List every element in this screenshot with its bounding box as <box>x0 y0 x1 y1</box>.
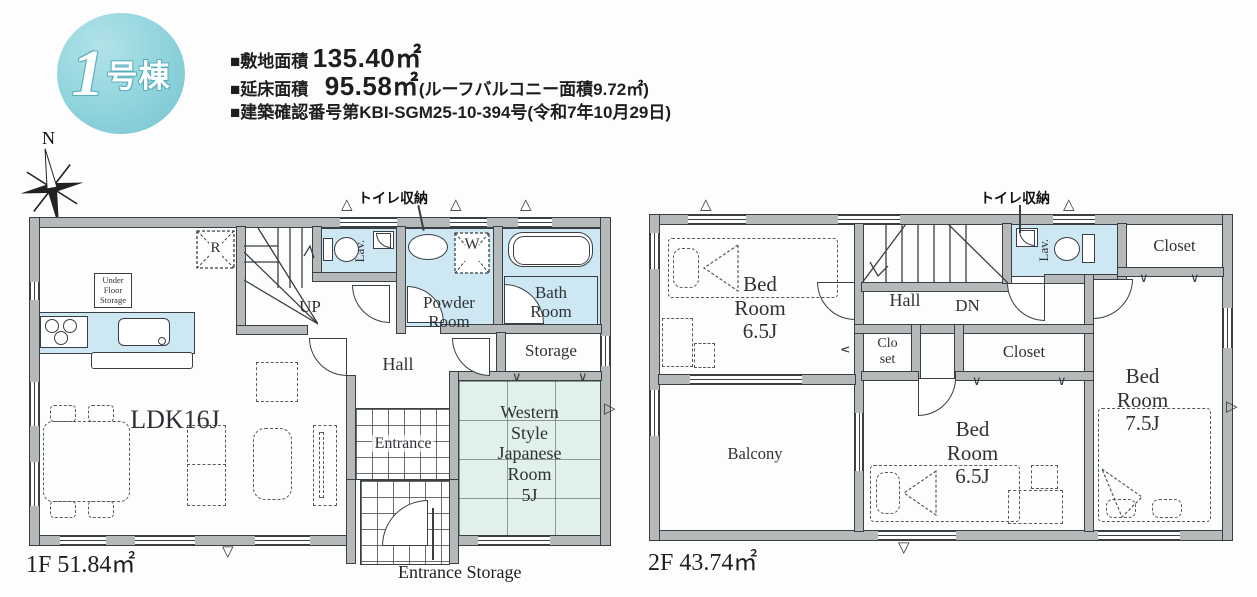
kitchen-counter-front <box>91 352 193 369</box>
window <box>650 233 659 269</box>
refrigerator-label: R <box>196 240 235 257</box>
bedroom2-line1: Bed <box>905 418 1040 442</box>
vent-marker-icon: △ <box>341 197 353 212</box>
window <box>255 536 310 545</box>
closet-small-line1: Clo <box>863 336 912 352</box>
bedroom2-line2: Room <box>905 442 1040 466</box>
dining-chair <box>88 501 114 518</box>
window <box>1053 215 1095 224</box>
floor2-area-label: 2F 43.74㎡ <box>648 542 757 577</box>
wall-segment <box>862 283 1008 291</box>
window <box>838 215 900 224</box>
bedroom1-label: Bed Room 6.5J <box>690 273 830 344</box>
ldk-label: LDK16J <box>130 406 220 435</box>
hall-label: Hall <box>368 355 428 375</box>
wall-segment <box>1223 215 1232 540</box>
blanket-fold-icon <box>1100 467 1144 519</box>
dining-table <box>43 421 130 502</box>
window <box>1223 308 1232 348</box>
stairs-up-label: UP <box>285 298 335 317</box>
entrance-label: Entrance <box>360 435 446 453</box>
bath-line1: Bath <box>511 284 591 303</box>
bathtub-inner <box>513 236 590 265</box>
vent-marker-icon: ▽ <box>222 544 234 559</box>
vent-marker-icon: △ <box>1063 197 1075 212</box>
door-arc <box>352 285 390 323</box>
lavatory-label: Lav. <box>353 229 367 273</box>
floor1-area-label: 1F 51.84㎡ <box>26 544 135 579</box>
window <box>30 382 39 426</box>
wall-segment <box>862 372 918 380</box>
dining-chair <box>50 501 76 518</box>
badge-number: 1 <box>72 36 105 112</box>
vent-marker-icon: △ <box>700 197 712 212</box>
bedroom2-label: Bed Room 6.5J <box>905 418 1040 489</box>
stairs-down-icon <box>862 224 1008 283</box>
wall-segment <box>494 227 502 333</box>
sink-drain <box>158 337 166 345</box>
permit-text: ■建築確認番号第KBI-SGM25-10-394号(令和7年10月29日) <box>230 103 671 122</box>
japanese-line3: Japanese <box>458 443 601 464</box>
japanese-room-label: Western Style Japanese Room 5J <box>458 402 601 505</box>
bedroom1-line3: 6.5J <box>690 320 830 344</box>
vent-marker-icon: ▷ <box>1226 399 1238 414</box>
entrance-text: Entrance <box>372 435 435 452</box>
window <box>135 536 195 545</box>
closet1-label: Closet <box>1126 237 1223 255</box>
hall-label: Hall <box>875 291 935 311</box>
building-badge: 1 号棟 <box>57 13 185 134</box>
bedroom1-line1: Bed <box>690 273 830 297</box>
floor2-plan: Lav. Bed Room 6.5J Hall DN Clo <box>650 215 1232 540</box>
low-table <box>253 428 292 500</box>
bedroom3-line3: 7.5J <box>1075 412 1210 436</box>
pillow <box>876 472 900 514</box>
toilet-tank <box>323 238 333 261</box>
japanese-line4: Room <box>458 464 601 485</box>
toilet-tank <box>1082 234 1095 263</box>
stove-burner <box>54 331 68 345</box>
lavatory-label: Lav. <box>1037 228 1051 272</box>
wall-segment <box>601 218 610 545</box>
window <box>30 282 39 300</box>
desk <box>662 318 693 367</box>
washer-label: W <box>454 236 490 254</box>
window <box>601 336 610 366</box>
vent-marker-icon: △ <box>450 197 462 212</box>
door-arc <box>309 338 347 376</box>
floor1-plan: Lav. W R Under Floor Storage <box>30 218 610 545</box>
floorplan-canvas: 1 号棟 ■敷地面積 135.40㎡ ■延床面積 95.58㎡(ルーフバルコニー… <box>0 0 1257 597</box>
wall-segment <box>450 480 458 563</box>
closet-small-line2: set <box>863 352 912 368</box>
japanese-line1: Western <box>458 402 601 423</box>
closet-small-label: Clo set <box>863 336 912 368</box>
annotation-pointer-line <box>1019 205 1021 233</box>
bedroom3-label: Bed Room 7.5J <box>1075 365 1210 436</box>
bath-room-label: Bath Room <box>511 284 591 321</box>
window <box>340 218 397 227</box>
vent-marker-icon: ▷ <box>604 401 616 416</box>
powder-sink <box>408 234 448 260</box>
wall-segment <box>397 227 405 333</box>
closet-open-mark: ∨ <box>1190 272 1200 285</box>
door-arc <box>1093 279 1133 319</box>
wall-segment <box>237 326 307 334</box>
stove-burner <box>63 319 77 333</box>
dining-chair <box>88 405 114 422</box>
window <box>1098 531 1180 540</box>
badge-suffix: 号棟 <box>107 51 171 96</box>
entrance-storage-annotation: Entrance Storage <box>398 562 521 583</box>
stairs-down-label: DN <box>945 297 990 316</box>
powder-room-label: Powder Room <box>405 294 493 331</box>
window <box>450 218 487 227</box>
closet-open-mark: ∨ <box>972 375 982 388</box>
balcony-label: Balcony <box>705 445 805 463</box>
desk <box>1008 490 1063 524</box>
vent-marker-icon: △ <box>520 197 532 212</box>
wall-segment <box>347 376 355 482</box>
chair <box>694 343 715 368</box>
window <box>518 218 552 227</box>
bedroom2-line3: 6.5J <box>905 465 1040 489</box>
closet-open-mark: ∨ <box>1139 272 1149 285</box>
japanese-line2: Style <box>458 423 601 444</box>
wall-segment <box>313 273 405 281</box>
tv-board <box>313 425 337 506</box>
bedroom1-line2: Room <box>690 297 830 321</box>
compass: N <box>16 128 88 232</box>
japanese-line5: 5J <box>458 485 601 506</box>
bedroom3-line2: Room <box>1075 389 1210 413</box>
bath-line2: Room <box>511 303 591 322</box>
floor-area-note: (ルーフバルコニー面積9.72㎡) <box>419 80 649 99</box>
bedroom3-line1: Bed <box>1075 365 1210 389</box>
closet-open-mark: ∨ <box>578 371 588 384</box>
powder-line2: Room <box>405 313 493 332</box>
window <box>30 462 39 506</box>
window <box>688 215 746 224</box>
window <box>650 390 659 436</box>
toilet-bowl <box>1054 237 1080 261</box>
powder-line1: Powder <box>405 294 493 313</box>
under-floor-storage-label: Under Floor Storage <box>92 276 134 305</box>
floor-area-value: 95.58㎡ <box>325 71 419 101</box>
sofa-divider <box>187 464 226 466</box>
closet-open-mark: ∨ <box>838 345 851 355</box>
closet-open-mark: ∨ <box>512 371 522 384</box>
annotation-pointer-line <box>432 508 434 560</box>
door-arc <box>918 378 956 416</box>
wall-segment <box>855 325 1093 333</box>
tv-screen <box>319 432 324 498</box>
storage-label: Storage <box>505 342 597 361</box>
door-arc <box>452 338 490 376</box>
closet2-label: Closet <box>963 343 1085 361</box>
wall-segment <box>347 480 355 563</box>
permit-row: ■建築確認番号第KBI-SGM25-10-394号(令和7年10月29日) <box>230 98 671 123</box>
toilet-storage-annotation-2f: トイレ収納 <box>980 188 1050 208</box>
balcony-side-window <box>855 413 863 471</box>
window <box>478 536 550 545</box>
wall-segment <box>1118 268 1223 276</box>
floor-area-label: ■延床面積 <box>230 80 308 99</box>
side-table <box>256 362 298 402</box>
vent-marker-icon: ▽ <box>898 540 910 555</box>
dining-chair <box>50 405 76 422</box>
under-floor-line3: Storage <box>92 296 134 306</box>
wall-segment <box>450 372 458 482</box>
pillow <box>1152 499 1182 518</box>
window <box>878 531 956 540</box>
balcony-window <box>690 375 802 384</box>
door-arc <box>1007 283 1045 321</box>
closet-open-mark: ∨ <box>1057 375 1067 388</box>
